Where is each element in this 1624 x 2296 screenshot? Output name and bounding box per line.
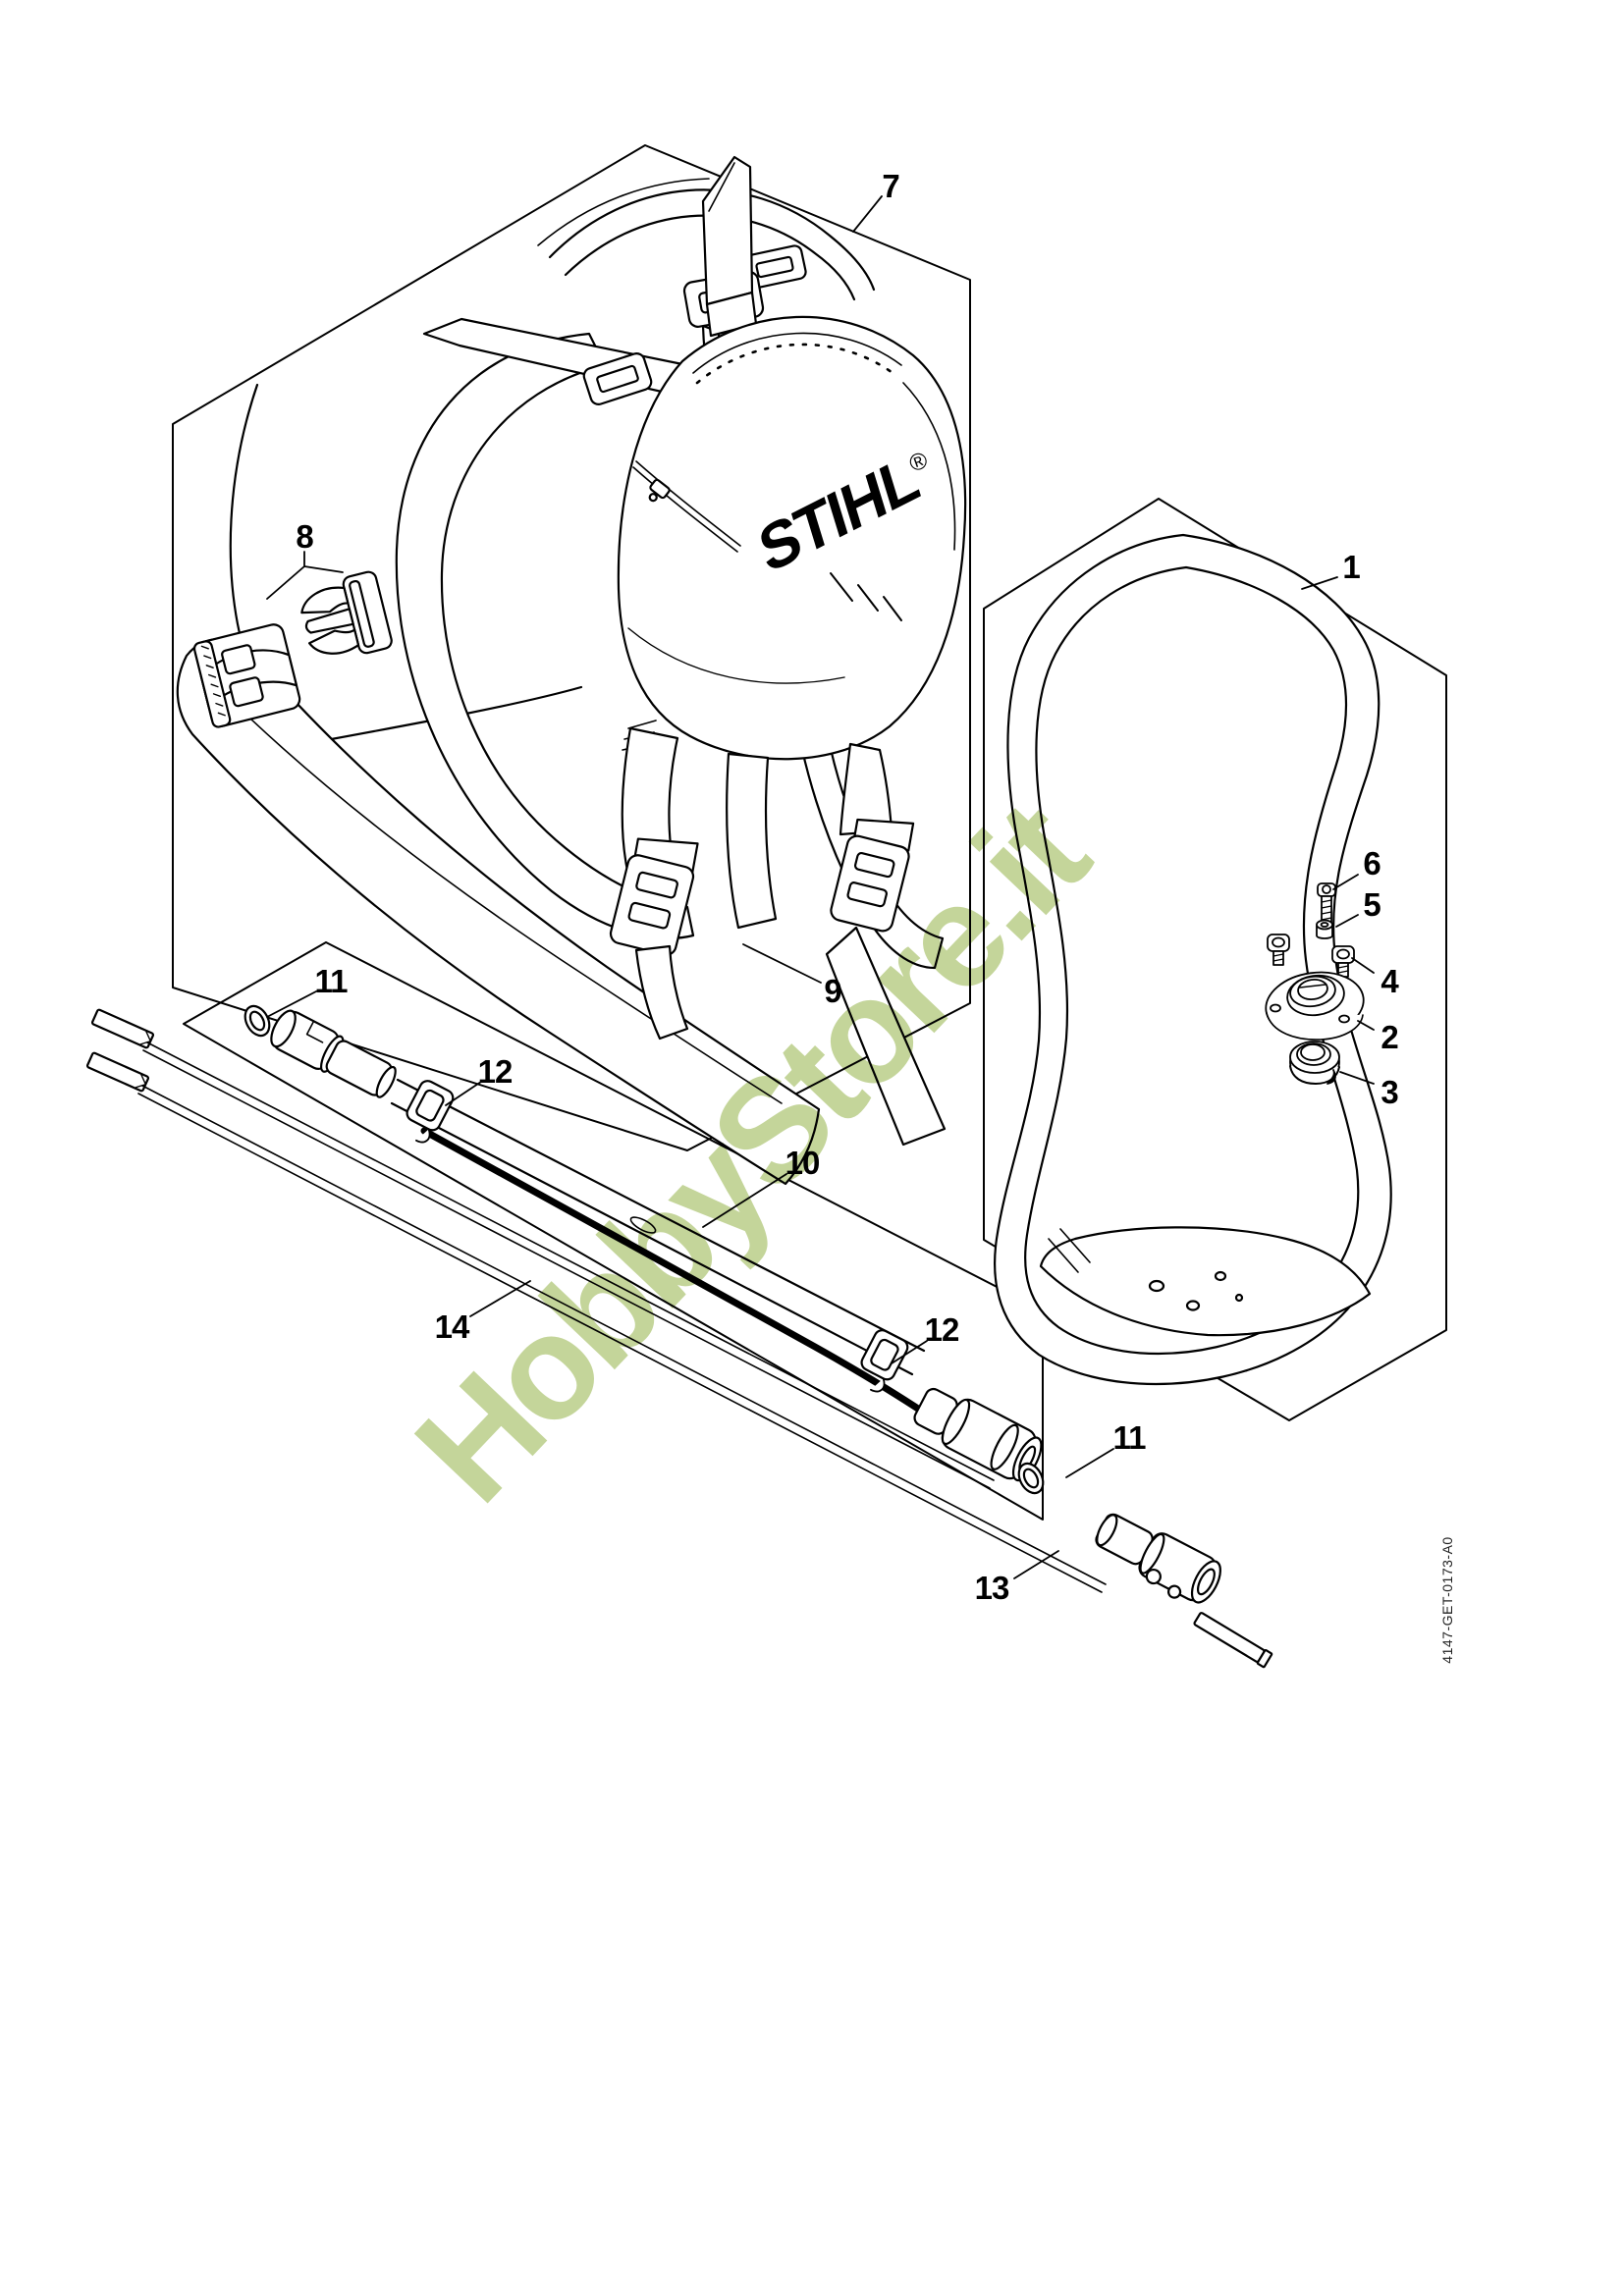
callout-8: 8 (296, 518, 312, 556)
leader-line-4 (1352, 958, 1374, 973)
doc-code: 4147-GET-0173-A0 (1439, 1536, 1455, 1663)
callout-5: 5 (1363, 886, 1380, 924)
callout-2: 2 (1380, 1019, 1397, 1056)
leader-line-2 (1358, 1021, 1374, 1030)
callout-3: 3 (1380, 1074, 1397, 1111)
leader-line-5 (1336, 915, 1358, 927)
buckle-part-8 (193, 570, 394, 728)
top-strap-tab (703, 157, 752, 304)
callout-11: 11 (1113, 1419, 1146, 1457)
callout-12: 12 (478, 1053, 513, 1091)
strap-part-9 (727, 754, 776, 928)
shaft-tip (1193, 1612, 1272, 1668)
shaft-coupler-13 (1087, 1506, 1226, 1613)
bearing-3 (1290, 1041, 1339, 1084)
shaft-tip (91, 1009, 153, 1048)
parts-diagram-page: STIHL ® (0, 0, 1624, 2296)
carrying-frame (995, 535, 1391, 1384)
callout-11: 11 (315, 963, 348, 1000)
leader-line-11 (1066, 1449, 1113, 1477)
leader-line-7 (853, 196, 882, 232)
callout-10: 10 (785, 1145, 820, 1182)
o-ring-11a (241, 1002, 274, 1041)
leader-line-13 (1014, 1551, 1058, 1578)
spacer-5 (1317, 921, 1332, 939)
callout-13: 13 (975, 1570, 1009, 1607)
callout-1: 1 (1342, 549, 1359, 586)
cable-clamp-12b (851, 1327, 910, 1396)
shaft-tip (86, 1052, 148, 1092)
callout-4: 4 (1380, 963, 1397, 1000)
leader-line-8 (267, 552, 304, 599)
cable-clamp-12a (397, 1078, 456, 1147)
callout-7: 7 (882, 168, 898, 205)
callout-14: 14 (435, 1308, 469, 1346)
callout-9: 9 (824, 973, 840, 1010)
tube-connector (266, 1006, 401, 1103)
leader-line-8 (304, 566, 343, 572)
callout-6: 6 (1363, 845, 1380, 882)
callout-12: 12 (925, 1311, 959, 1349)
